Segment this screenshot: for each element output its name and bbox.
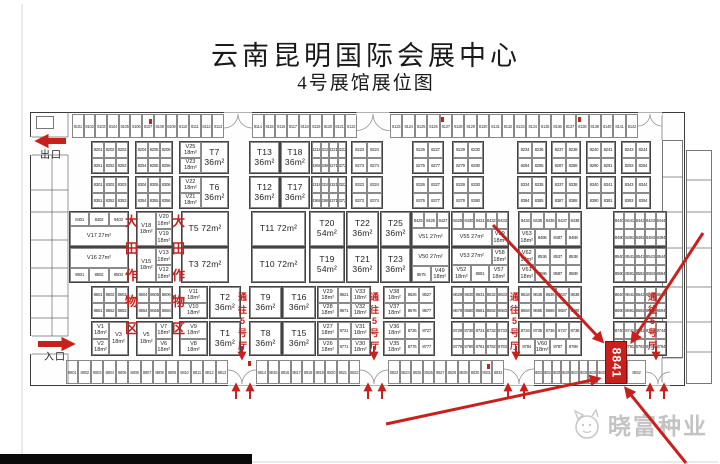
booth-8435: 8435 <box>531 212 543 229</box>
booth-group: 8784V60 18m²87878788 <box>519 339 581 356</box>
booth-8387: 8387 <box>552 193 566 209</box>
red-label-char: 区 <box>172 318 185 337</box>
booth-group: 8223822482738274 <box>352 142 382 173</box>
booth-8135: 8135 <box>539 114 551 138</box>
booth-8319: 8319 <box>321 177 330 193</box>
booth-group: V25 18m²V23 18m² <box>180 142 201 173</box>
booth-8815: 8815 <box>268 360 280 384</box>
red-vertical-label: 通往5号厅 <box>368 290 381 347</box>
red-label-char: 往 <box>238 303 247 316</box>
booth-8340: 8340 <box>587 177 601 193</box>
booth-V21: V21 18m² <box>180 193 201 209</box>
booth-8330: 8330 <box>468 177 483 193</box>
booth-8303: 8303 <box>116 177 128 193</box>
booth-group: 820482058206825482558256 <box>136 142 172 173</box>
booth-8269: 8269 <box>321 158 330 174</box>
booth-row: 83408341 <box>587 177 615 193</box>
booth-8834: 8834 <box>543 360 552 384</box>
booth-8355: 8355 <box>148 193 160 209</box>
booth-group: 84348435843684378438V63 18m²848684878488 <box>519 212 581 246</box>
booth-group: 84298430843184328433 <box>452 212 508 229</box>
booth-8633: 8633 <box>497 287 508 303</box>
booth-8372: 8372 <box>338 193 347 209</box>
booth-row: 83378338 <box>552 177 580 193</box>
booth-8240: 8240 <box>587 142 601 158</box>
booth-strip: 8842 <box>627 360 646 384</box>
article-image: 云南昆明国际会展中心 4号展馆展位图 810181028103810481058… <box>0 0 720 464</box>
booth-group: 8629863086318632863386798680868186828683 <box>452 287 508 318</box>
red-label-char: 号 <box>238 326 247 339</box>
booth-8729: 8729 <box>452 322 463 339</box>
booth-8543: 8543 <box>645 248 655 265</box>
booth-group: V53 27m²V58 18m² <box>452 248 508 265</box>
booth-8637: 8637 <box>556 287 568 303</box>
booth-8816: 8816 <box>279 360 291 384</box>
booth-8376: 8376 <box>413 193 428 209</box>
booth-group: 87348735873687378738 <box>519 322 581 339</box>
booth-8731: 8731 <box>474 322 485 339</box>
booth-8742: 8742 <box>635 322 645 339</box>
booth-group: 842584268427V51 27m² <box>412 212 449 246</box>
booth-8103: 8103 <box>95 114 107 138</box>
booth-8586: 8586 <box>535 265 551 282</box>
booth-8205: 8205 <box>148 142 160 158</box>
booth-8125: 8125 <box>415 114 427 138</box>
booth-8284: 8284 <box>518 158 532 174</box>
booth-8139: 8139 <box>589 114 601 138</box>
booth-8241: 8241 <box>601 142 615 158</box>
booth-8251: 8251 <box>92 158 104 174</box>
booth-8252: 8252 <box>104 158 116 174</box>
booth-V63: V63 18m² <box>519 229 535 246</box>
booth-8105: 8105 <box>119 114 131 138</box>
booth-group: 83188319832183228368836983718372 <box>312 177 346 208</box>
booth-8444: 8444 <box>656 212 666 229</box>
booth-V62: V62 18m² <box>519 248 535 265</box>
booth-group: 8634863586368637863886848685868686878688 <box>519 287 581 318</box>
booth-V57: V57 18m² <box>489 265 508 282</box>
red-label-char: 号 <box>370 326 379 339</box>
booth-8592: 8592 <box>635 265 645 282</box>
booth-8491: 8491 <box>624 229 634 246</box>
red-label-char: 往 <box>648 303 657 316</box>
booth-8837: 8837 <box>570 360 579 384</box>
red-label-char: 往 <box>370 303 379 316</box>
booth-8804: 8804 <box>103 360 115 384</box>
booth-8721: 8721 <box>338 322 351 339</box>
booth-8429: 8429 <box>452 212 463 229</box>
booth-group: V62 18m²853685378538 <box>519 248 581 265</box>
booth-8134: 8134 <box>526 114 538 138</box>
booth-group: 84298430843184328433V55 27m²V59 18m² <box>452 212 508 246</box>
booth-8141: 8141 <box>613 114 625 138</box>
booth-8238: 8238 <box>566 142 580 158</box>
booth-strip: 811481158116811781188119812081218122 <box>252 114 357 138</box>
booth-8334: 8334 <box>518 177 532 193</box>
booth-8642: 8642 <box>635 287 645 303</box>
booth-8787: 8787 <box>550 339 566 356</box>
booth-8688: 8688 <box>569 303 581 319</box>
exit-label: 出口 <box>40 146 62 161</box>
booth-8814: 8814 <box>256 360 268 384</box>
booth-8686: 8686 <box>544 303 556 319</box>
booth-8679: 8679 <box>452 303 463 319</box>
booth-8825: 8825 <box>411 360 423 384</box>
booth-group: 8440844184428443844484908491849284938494 <box>614 212 666 246</box>
booth-8371: 8371 <box>329 193 338 209</box>
booth-8727: 8727 <box>419 322 434 339</box>
booth-8274: 8274 <box>367 158 382 174</box>
red-label-char: 物 <box>172 291 185 310</box>
booth-8677: 8677 <box>419 303 434 319</box>
booth-row: 825182528253 <box>92 158 128 174</box>
booth-row: 83848385 <box>518 193 546 209</box>
booth-8575: 8575 <box>412 266 431 282</box>
booth-8255: 8255 <box>148 158 160 174</box>
booth-T7: T7 36m² <box>201 142 228 173</box>
booth-8279: 8279 <box>453 158 468 174</box>
red-label-char: 通 <box>370 290 379 303</box>
booth-8537: 8537 <box>550 248 566 265</box>
booth-8374: 8374 <box>367 193 382 209</box>
booth-8438: 8438 <box>569 212 581 229</box>
booth-8779: 8779 <box>452 339 463 356</box>
booth-8730: 8730 <box>463 322 474 339</box>
booth-group: V27 18m²V26 18m²87218771V31 18m²V30 18m² <box>318 322 370 355</box>
red-label-char: 厅 <box>648 339 657 352</box>
booth-8117: 8117 <box>287 114 299 138</box>
booth-8683: 8683 <box>497 303 508 319</box>
entrance-label: 入口 <box>44 348 66 363</box>
booth-T13: T13 36m² <box>250 142 279 173</box>
booth-group: 82188219822182228268826982718272 <box>312 142 346 173</box>
booth-strip: 8823882488258826882788288829883088318832 <box>388 360 504 384</box>
booth-V6: V6 18m² <box>156 339 173 356</box>
booth-8273: 8273 <box>352 158 367 174</box>
booth-8588: 8588 <box>566 265 582 282</box>
booth-group: V61 18m²858685878588 <box>519 265 581 282</box>
booth-8222: 8222 <box>338 142 347 158</box>
red-label-char: 大 <box>172 211 185 230</box>
booth-8832: 8832 <box>492 360 504 384</box>
booth-8329: 8329 <box>453 177 468 193</box>
booth-8119: 8119 <box>310 114 322 138</box>
booth-8594: 8594 <box>656 265 666 282</box>
booth-V53: V53 27m² <box>452 248 492 265</box>
booth-group: 8726872787768777 <box>405 322 434 355</box>
booth-group: 840184028403V17 27m² <box>70 212 128 246</box>
booth-8601: 8601 <box>92 287 104 303</box>
booth-8442: 8442 <box>635 212 645 229</box>
booth-8486: 8486 <box>535 229 551 246</box>
booth-8337: 8337 <box>552 177 566 193</box>
service-room <box>36 116 54 129</box>
booth-V27: V27 18m² <box>318 322 338 339</box>
booth-8741: 8741 <box>624 322 634 339</box>
booth-V17: V17 27m² <box>70 226 128 246</box>
booth-8581: 8581 <box>471 265 490 282</box>
booth-row: 82848285 <box>518 158 546 174</box>
booth-8820: 8820 <box>325 360 337 384</box>
booth-V59: V59 18m² <box>492 229 508 246</box>
booth-V37: V37 18m² <box>384 303 405 319</box>
booth-group: 873487358736873787388784V60 18m²87878788 <box>519 322 581 355</box>
red-vertical-label: 通往5号厅 <box>236 290 249 347</box>
red-label-char: 5 <box>650 316 655 326</box>
booth-row: 865486558656 <box>137 303 172 319</box>
booth-row: 87798780878187828783 <box>452 339 508 356</box>
booth-8641: 8641 <box>624 287 634 303</box>
booth-8285: 8285 <box>532 158 546 174</box>
booth-group: V1 18m²V2 18m² <box>92 322 109 355</box>
booth-8635: 8635 <box>531 287 543 303</box>
booth-8237: 8237 <box>552 142 566 158</box>
booth-row: 87268727 <box>405 322 434 339</box>
booth-8782: 8782 <box>486 339 497 356</box>
booth-8272: 8272 <box>338 158 347 174</box>
booth-8436: 8436 <box>544 212 556 229</box>
booth-8788: 8788 <box>566 339 582 356</box>
booth-T9: T9 36m² <box>250 287 281 318</box>
booth-V58: V58 18m² <box>492 248 508 265</box>
booth-8682: 8682 <box>486 303 497 319</box>
booth-group: 8329833083798380 <box>453 177 483 208</box>
booth-8343: 8343 <box>622 177 636 193</box>
red-label-char: 田 <box>125 238 138 257</box>
booth-8817: 8817 <box>291 360 303 384</box>
booth-8268: 8268 <box>312 158 321 174</box>
red-label-char: 5 <box>240 316 245 326</box>
booth-8652: 8652 <box>104 303 116 319</box>
booth-8826: 8826 <box>423 360 435 384</box>
booth-T21: T21 36m² <box>347 248 378 282</box>
red-label-char: 厅 <box>370 339 379 352</box>
booth-8810: 8810 <box>178 360 190 384</box>
booth-8771: 8771 <box>338 339 351 356</box>
booth-group: V52 18m²8581V57 18m² <box>452 265 508 282</box>
booth-8351: 8351 <box>92 193 104 209</box>
booth-group: 842584268427 <box>412 212 449 228</box>
booth-group: V18 18m²V20 18m²V19 18m² <box>137 212 172 246</box>
booth-8836: 8836 <box>561 360 570 384</box>
booth-8809: 8809 <box>166 360 178 384</box>
booth-row: 82908291 <box>587 158 615 174</box>
booth-8626: 8626 <box>405 287 420 303</box>
booth-group: V22 18m²V21 18m²T6 36m² <box>180 177 228 208</box>
booth-row: 82298230 <box>453 142 483 158</box>
booth-8219: 8219 <box>321 142 330 158</box>
booth-8203: 8203 <box>116 142 128 158</box>
booth-8373: 8373 <box>352 193 367 209</box>
booth-group: 8326832783768377 <box>413 177 443 208</box>
booth-V61: V61 18m² <box>519 265 535 282</box>
floor-plan: 8101810281038104810581068107810881098110… <box>0 0 720 464</box>
booth-8671: 8671 <box>338 303 351 319</box>
booth-group: 8729873087318732873387798780878187828783 <box>452 322 508 355</box>
booth-8733: 8733 <box>497 322 508 339</box>
booth-group: 8337833883878388 <box>552 177 580 208</box>
booth-row: 82268227 <box>413 142 443 158</box>
booth-row: 85908591859285938594 <box>614 265 666 282</box>
booth-8384: 8384 <box>518 193 532 209</box>
booth-8277: 8277 <box>428 158 443 174</box>
booth-row: 825482558256 <box>136 158 172 174</box>
booth-8388: 8388 <box>566 193 580 209</box>
booth-8305: 8305 <box>148 177 160 193</box>
booth-8221: 8221 <box>329 142 338 158</box>
booth-group: V22 18m²V21 18m² <box>180 177 201 208</box>
booth-8494: 8494 <box>656 229 666 246</box>
booth-8835: 8835 <box>552 360 561 384</box>
booth-T15: T15 36m² <box>283 322 315 355</box>
booth-8593: 8593 <box>645 265 655 282</box>
booth-row: 83768377 <box>413 193 443 209</box>
booth-V25: V25 18m² <box>180 142 201 158</box>
booth-8271: 8271 <box>329 158 338 174</box>
booth-T5: T5 72m² <box>182 212 228 246</box>
booth-8291: 8291 <box>601 158 615 174</box>
booth-8106: 8106 <box>130 114 142 138</box>
booth-8501: 8501 <box>70 268 89 282</box>
booth-T6: T6 36m² <box>201 177 228 208</box>
booth-8830: 8830 <box>469 360 481 384</box>
booth-V50: V50 27m² <box>412 248 449 266</box>
booth-8390: 8390 <box>587 193 601 209</box>
booth-V26: V26 18m² <box>318 339 338 356</box>
booth-8738: 8738 <box>569 322 581 339</box>
booth-group: 8540854185428543854485908591859285938594 <box>614 248 666 282</box>
booth-row: 86268627 <box>405 287 434 303</box>
booth-V36: V36 18m² <box>384 322 405 339</box>
red-label-char: 号 <box>648 326 657 339</box>
booth-8137: 8137 <box>564 114 576 138</box>
booth-8380: 8380 <box>468 193 483 209</box>
booth-8254: 8254 <box>136 158 148 174</box>
booth-8823: 8823 <box>388 360 400 384</box>
booth-8235: 8235 <box>532 142 546 158</box>
booth-row: 82238224 <box>352 142 382 158</box>
red-label-char: 5 <box>512 316 517 326</box>
booth-row: 830183028303 <box>92 177 128 193</box>
booth-row: 8218821982218222 <box>312 142 346 158</box>
booth-8121: 8121 <box>334 114 346 138</box>
booth-8132: 8132 <box>502 114 514 138</box>
booth-8811: 8811 <box>191 360 203 384</box>
booth-row: 83298330 <box>453 177 483 193</box>
booth-8818: 8818 <box>302 360 314 384</box>
booth-8822: 8822 <box>349 360 361 384</box>
booth-row: 83268327 <box>413 177 443 193</box>
booth-row: 83908391 <box>587 193 615 209</box>
booth-8538: 8538 <box>566 248 582 265</box>
booth-8487: 8487 <box>550 229 566 246</box>
booth-8651: 8651 <box>92 303 104 319</box>
booth-group: 8237823882878288 <box>552 142 580 173</box>
booth-row: 820182028203 <box>92 142 128 158</box>
booth-V35: V35 18m² <box>384 339 405 356</box>
booth-8640: 8640 <box>614 287 624 303</box>
booth-8394: 8394 <box>636 193 650 209</box>
booth-8352: 8352 <box>104 193 116 209</box>
booth-8115: 8115 <box>264 114 276 138</box>
booth-T19: T19 54m² <box>310 248 344 282</box>
booth-8218: 8218 <box>312 142 321 158</box>
booth-8590: 8590 <box>614 265 624 282</box>
booth-8431: 8431 <box>474 212 485 229</box>
booth-8542: 8542 <box>635 248 645 265</box>
booth-8368: 8368 <box>312 193 321 209</box>
booth-8201: 8201 <box>92 142 104 158</box>
booth-8690: 8690 <box>614 303 624 319</box>
booth-8107: 8107 <box>142 114 154 138</box>
booth-8110: 8110 <box>177 114 189 138</box>
booth-row: 820482058206 <box>136 142 172 158</box>
booth-8227: 8227 <box>428 142 443 158</box>
booth-row: 82878288 <box>552 158 580 174</box>
booth-8302: 8302 <box>104 177 116 193</box>
booth-row: 83798380 <box>453 193 483 209</box>
booth-8807: 8807 <box>141 360 153 384</box>
red-vertical-label: 通往5号厅 <box>646 290 659 347</box>
booth-8621: 8621 <box>338 287 351 303</box>
booth-8323: 8323 <box>352 177 367 193</box>
booth-group: 840184028403 <box>70 212 128 226</box>
booth-8224: 8224 <box>367 142 382 158</box>
booth-8808: 8808 <box>153 360 165 384</box>
booth-group: V36 18m²V35 18m²8726872787768777 <box>384 322 434 355</box>
booth-group: 830483058306835483558356 <box>136 177 172 208</box>
booth-8113: 8113 <box>212 114 224 138</box>
booth-8824: 8824 <box>400 360 412 384</box>
booth-T8: T8 36m² <box>250 322 281 355</box>
booth-8344: 8344 <box>636 177 650 193</box>
booth-8322: 8322 <box>338 177 347 193</box>
booth-8204: 8204 <box>136 142 148 158</box>
booth-8629: 8629 <box>452 287 463 303</box>
booth-8230: 8230 <box>468 142 483 158</box>
booth-group: 8575V49 18m² <box>412 266 449 282</box>
booth-group: 8340834183908391 <box>587 177 615 208</box>
booth-8736: 8736 <box>544 322 556 339</box>
booth-8243: 8243 <box>622 142 636 158</box>
booth-group: 84348435843684378438 <box>519 212 581 229</box>
booth-group: V29 18m²V28 18m²86218671V33 18m²V32 18m² <box>318 287 370 318</box>
booth-8140: 8140 <box>601 114 613 138</box>
booth-group: 8243824482938294 <box>622 142 650 173</box>
booth-row: 86768677 <box>405 303 434 319</box>
booth-8131: 8131 <box>489 114 501 138</box>
booth-8356: 8356 <box>160 193 172 209</box>
booth-row: 82378238 <box>552 142 580 158</box>
booth-row: 8368836983718372 <box>312 193 346 209</box>
booth-8806: 8806 <box>128 360 140 384</box>
booth-strip: 8123812481258126812781288129813081318132… <box>390 114 638 138</box>
booth-8120: 8120 <box>322 114 334 138</box>
booth-8206: 8206 <box>160 142 172 158</box>
red-label-char: 厅 <box>510 339 519 352</box>
booth-8638: 8638 <box>569 287 581 303</box>
booth-group: 86218671 <box>338 287 351 318</box>
red-label-char: 物 <box>125 291 138 310</box>
red-label-char: 通 <box>648 290 657 303</box>
booth-T20: T20 54m² <box>310 212 344 246</box>
booth-row: 86848685868686878688 <box>519 303 581 319</box>
booth-group: V38 18m²V37 18m²8626862786768677 <box>384 287 434 318</box>
booth-8777: 8777 <box>419 339 434 356</box>
booth-V60: V60 18m² <box>535 339 551 356</box>
booth-8842: 8842 <box>627 360 646 384</box>
red-label-char: 作 <box>125 265 138 284</box>
